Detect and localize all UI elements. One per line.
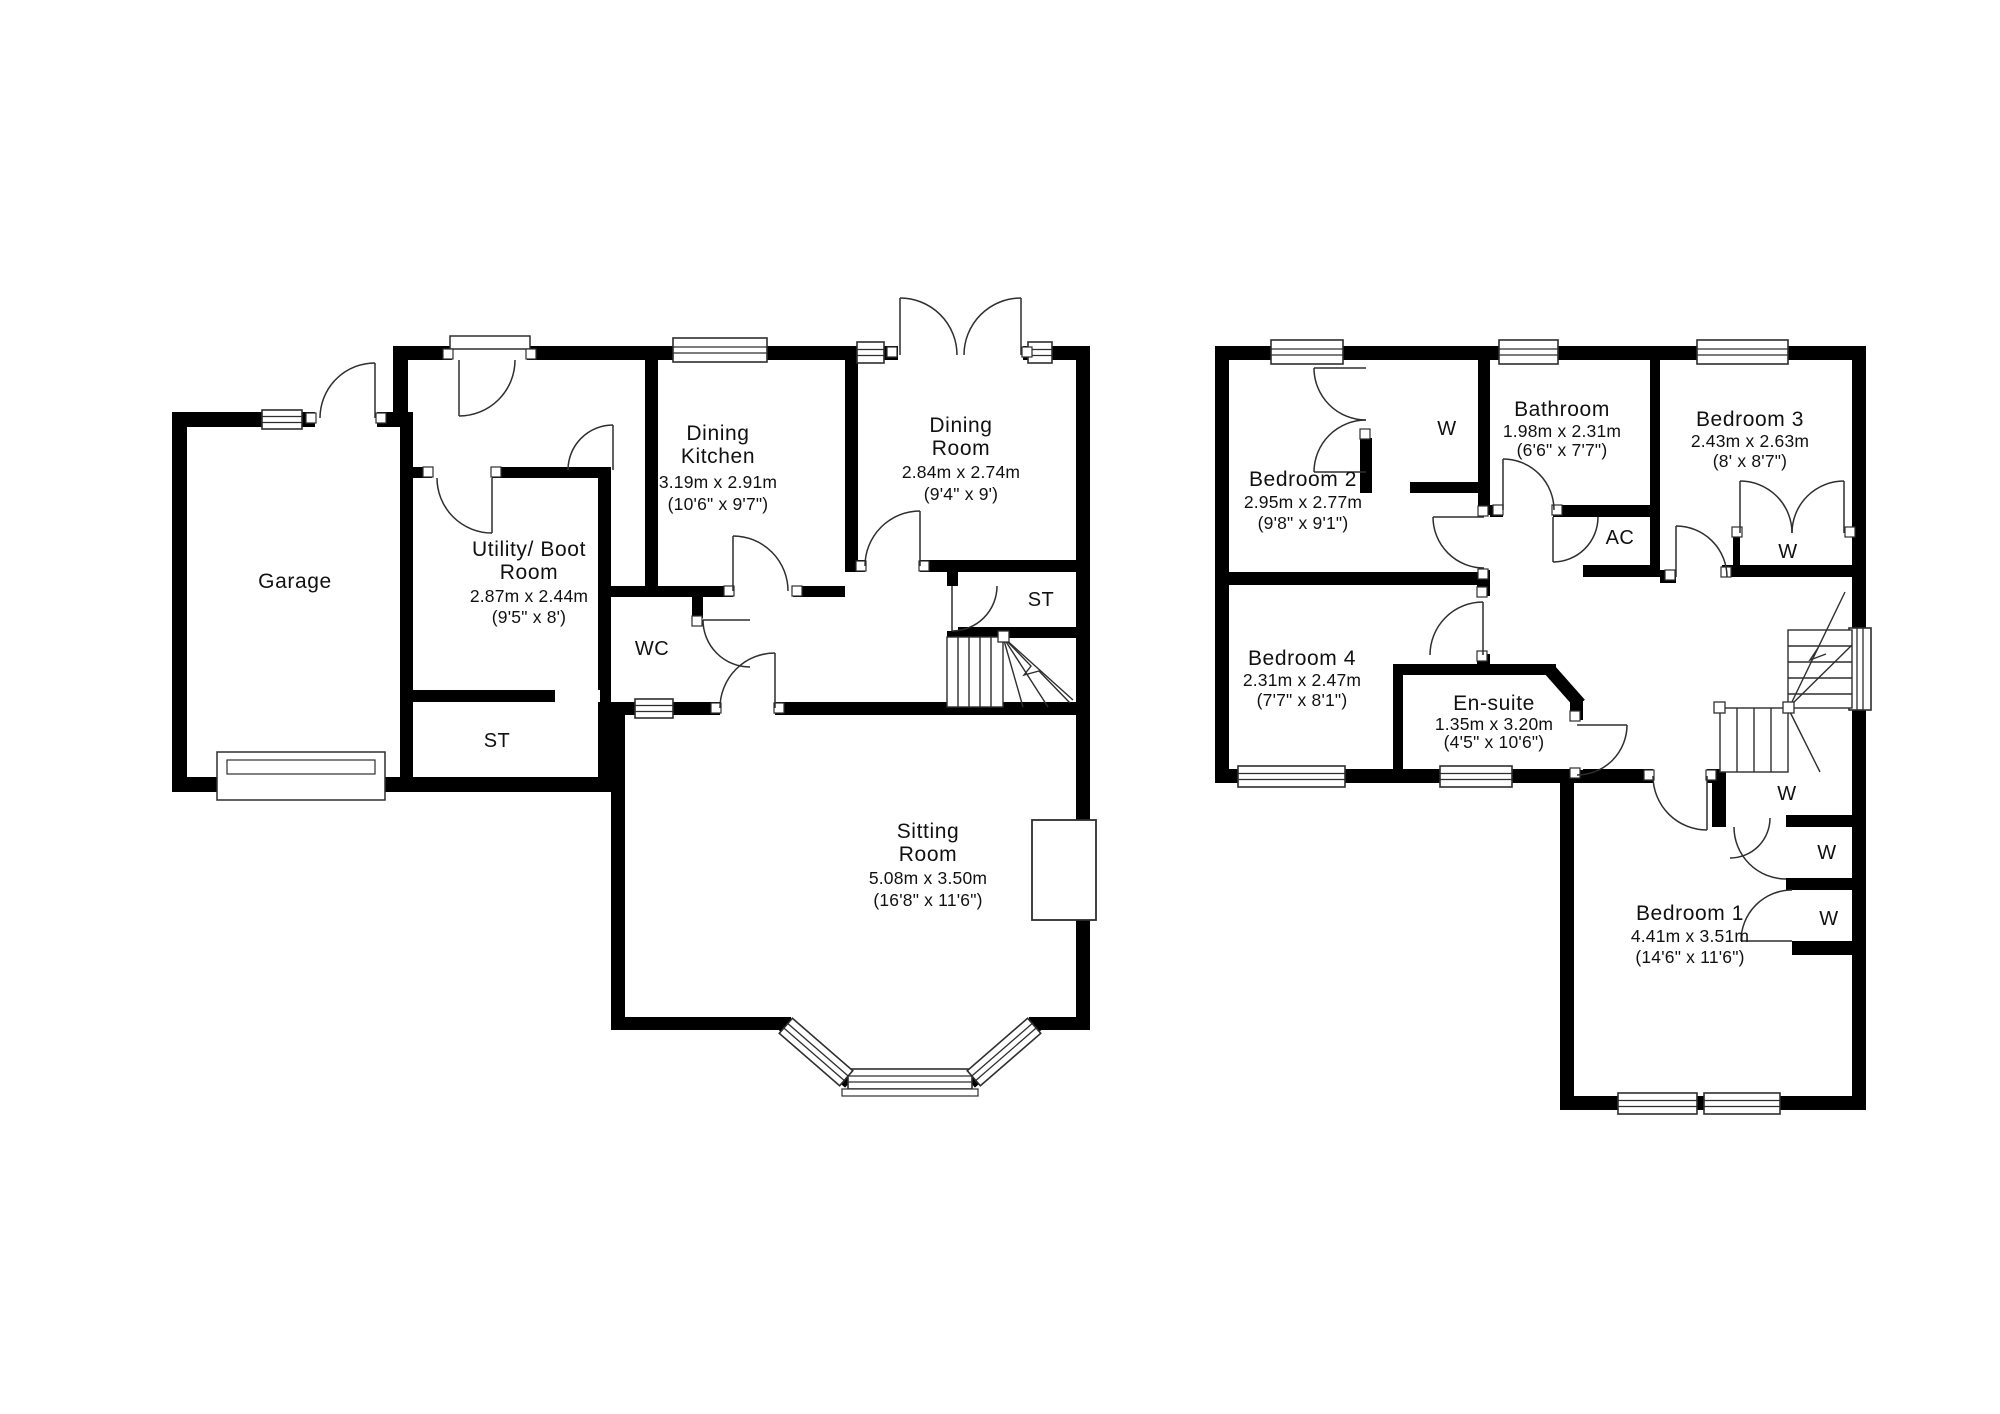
door-jamb [1493,505,1503,515]
door-arc [952,586,997,631]
window [1704,1093,1780,1114]
room-dims-bedroom-4: 2.31m x 2.47m [1243,670,1361,690]
wall-segment [611,586,651,597]
room-dims-dining-kitchen: 3.19m x 2.91m [659,472,777,492]
door-jamb [1570,768,1580,778]
bay-window [967,1018,1040,1086]
bay-window [779,1018,852,1086]
room-dims-sitting-room: (16'8" x 11'6") [873,890,982,910]
staircase-ground [947,637,1003,707]
wall-segment [400,777,622,792]
wall-segment [947,572,958,588]
room-label-wardrobe-bedroom-2: W [1437,418,1456,440]
door-arc [437,478,492,533]
room-label-utility: Room [500,561,558,584]
wall-segment [1215,346,1229,783]
room-dims-bedroom-4: (7'7" x 8'1") [1257,690,1348,710]
door-jamb [423,467,433,477]
room-label-bedroom-2: Bedroom 2 [1249,468,1357,491]
floorplan-canvas: GarageUtility/ BootRoom2.87m x 2.44m(9'5… [0,0,2000,1414]
wall-segment [393,346,408,422]
door-opening [1478,515,1490,570]
door-opening [315,410,377,429]
wall-segment [1712,783,1726,827]
room-label-dining-room: Dining [929,414,992,437]
room-label-wardrobe-3-bedroom-1: W [1819,908,1838,930]
door-jamb [1570,711,1580,721]
front-door-leaf [450,336,530,349]
door-arc [320,363,375,418]
wall-segment [1393,664,1403,770]
door-arc [1430,602,1483,655]
door-arc [1433,517,1484,568]
room-label-dining-kitchen: Dining [686,422,749,445]
door-arc [1740,481,1792,533]
room-dims-dining-room: 2.84m x 2.74m [902,462,1020,482]
door-jamb [1477,651,1487,661]
window [1440,766,1512,787]
room-dims-sitting-room: 5.08m x 3.50m [869,868,987,888]
door-jamb [692,616,702,626]
door-arc [703,620,750,667]
door-jamb [443,349,453,359]
room-label-utility: Utility/ Boot [472,538,586,561]
window [1618,1093,1697,1114]
door-jamb [1022,347,1032,357]
door-jamb [792,586,802,596]
door-jamb [1478,506,1488,516]
stair-newel [1714,702,1725,713]
door-arc [1553,517,1598,562]
door-arc [1314,368,1366,420]
wall-segment [1553,505,1653,517]
window [857,342,884,363]
room-label-airing-cupboard: AC [1606,527,1635,549]
door-jamb [306,413,316,423]
door-opening [733,584,793,599]
wall-segment [645,360,658,597]
window-sill [842,1089,978,1096]
door-jamb [1845,527,1855,537]
room-dims-bedroom-2: (9'8" x 9'1") [1258,513,1349,533]
wall-segment [1786,815,1852,827]
window [673,338,767,362]
room-dims-bedroom-1: 4.41m x 3.51m [1631,926,1749,946]
wall-segment [1560,783,1574,1110]
stair-direction-line [1788,708,1820,772]
room-dims-bathroom: 1.98m x 2.31m [1503,421,1621,441]
room-label-bedroom-1: Bedroom 1 [1636,902,1744,925]
wall-segment [172,412,187,792]
window [1238,766,1345,787]
door-opening [898,344,1023,362]
wall-segment [1215,572,1490,585]
room-label-garage: Garage [258,570,332,593]
room-dims-en-suite: (4'5" x 10'6") [1444,732,1545,752]
wall-segment [1410,482,1478,493]
door-arc [1314,420,1366,472]
door-jamb [1477,587,1487,597]
room-label-sitting-room: Sitting [897,820,960,843]
room-label-bedroom-4: Bedroom 4 [1248,647,1356,670]
staircase-first-upper [1788,630,1852,708]
wall-segment [1792,941,1866,955]
wall-segment [611,1017,791,1030]
door-opening [555,690,600,702]
wall-segment [1786,878,1852,890]
room-label-wardrobe-1-bedroom-1: W [1777,783,1796,805]
room-label-bathroom: Bathroom [1514,398,1610,421]
room-label-wc: WC [635,638,669,660]
room-dims-en-suite: 1.35m x 3.20m [1435,714,1553,734]
wall-segment [1478,360,1490,517]
wall-segment [1076,346,1090,826]
stair-newel [1783,702,1794,713]
room-label-dining-room: Room [932,437,990,460]
door-arc [1577,725,1627,775]
window [1271,340,1343,364]
wall-segment [1583,565,1660,577]
door-opening [1503,503,1553,519]
room-label-wardrobe-2-bedroom-1: W [1817,842,1836,864]
garage-door [217,752,385,800]
room-dims-bedroom-3: 2.43m x 2.63m [1691,431,1809,451]
door-jamb [1360,429,1370,439]
door-arc [568,425,613,470]
door-arc [733,536,788,591]
wall-segment [845,360,858,572]
room-label-st-stairs: ST [1028,589,1055,611]
door-arc [1792,481,1844,533]
door-arc [1503,459,1554,510]
room-dims-bedroom-3: (8' x 8'7") [1713,451,1787,471]
wall-segment [598,467,611,777]
wall-segment [692,597,703,618]
door-arc [1734,827,1786,879]
room-dims-bedroom-2: 2.95m x 2.77m [1244,492,1362,512]
stair-newel [998,631,1009,642]
window [262,410,302,429]
room-label-sitting-room: Room [899,843,957,866]
fireplace-chimney [1032,820,1096,920]
garage-door-panel [227,760,375,774]
room-label-bedroom-3: Bedroom 3 [1696,408,1804,431]
window [1499,340,1558,364]
wall-segment [1393,664,1556,675]
wall-segment [1650,360,1660,577]
door-arc [865,511,920,566]
room-dims-dining-room: (9'4" x 9') [924,484,998,504]
room-dims-utility: (9'5" x 8') [492,607,566,627]
room-dims-bedroom-1: (14'6" x 11'6") [1635,947,1744,967]
room-label-dining-kitchen: Kitchen [681,445,755,468]
room-dims-bathroom: (6'6" x 7'7") [1517,440,1608,460]
wall-segment [1360,438,1372,493]
door-opening [720,700,775,717]
window [635,699,673,718]
door-opening [432,465,492,480]
door-arc [1730,818,1770,858]
door-jamb [887,347,897,357]
window [1697,340,1788,364]
door-jamb [526,349,536,359]
door-jamb [1478,569,1488,579]
room-label-wardrobe-bedroom-3: W [1778,541,1797,563]
room-dims-dining-kitchen: (10'6" x 9'7") [668,494,769,514]
wall-segment-diagonal [1549,669,1580,704]
room-dims-utility: 2.87m x 2.44m [470,586,588,606]
door-opening [1570,720,1583,770]
room-label-st-store: ST [484,730,511,752]
wall-segment [1852,346,1866,1110]
door-jamb [491,467,501,477]
door-opening [1653,767,1707,785]
door-opening [865,558,920,574]
door-arc [459,360,515,416]
wall-segment [611,702,625,1030]
door-opening [1676,566,1722,585]
wall-segment [1076,912,1090,1030]
door-jamb [1665,570,1675,580]
window [848,1069,972,1089]
floorplan-svg: GarageUtility/ BootRoom2.87m x 2.44m(9'5… [0,0,2000,1414]
wall-segment [1733,565,1852,577]
room-label-en-suite: En-suite [1453,692,1535,715]
door-jamb [376,413,386,423]
